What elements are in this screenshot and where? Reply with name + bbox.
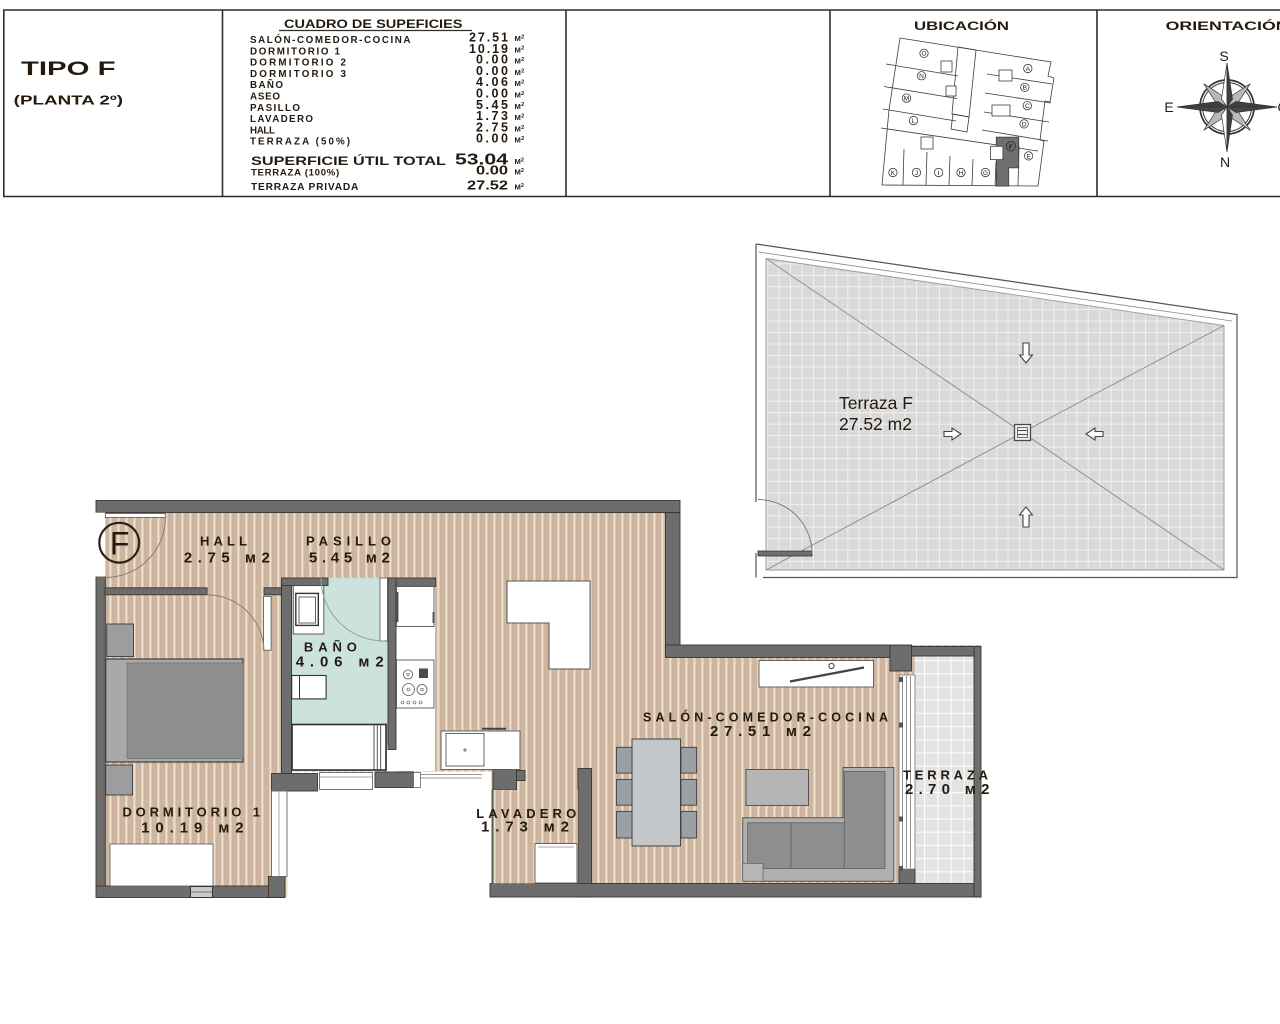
svg-text:BAÑO: BAÑO bbox=[250, 80, 283, 91]
svg-text:UBICACIÓN: UBICACIÓN bbox=[914, 20, 1009, 33]
svg-text:ASEO: ASEO bbox=[250, 92, 280, 103]
svg-text:DORMITORIO 1: DORMITORIO 1 bbox=[122, 804, 260, 819]
svg-text:M2: M2 bbox=[515, 136, 525, 145]
svg-text:O: O bbox=[921, 51, 926, 58]
svg-text:SUPERFICIE ÚTIL TOTAL: SUPERFICIE ÚTIL TOTAL bbox=[251, 153, 446, 168]
svg-text:TERRAZA (50%): TERRAZA (50%) bbox=[250, 137, 350, 148]
svg-text:N: N bbox=[919, 73, 924, 80]
svg-text:H: H bbox=[959, 170, 964, 177]
svg-text:M2: M2 bbox=[515, 79, 525, 88]
svg-text:S: S bbox=[1219, 48, 1228, 64]
svg-text:E: E bbox=[1026, 153, 1031, 160]
svg-text:J: J bbox=[915, 170, 918, 177]
svg-text:F: F bbox=[1009, 144, 1013, 151]
svg-text:M2: M2 bbox=[515, 91, 525, 100]
svg-text:TERRAZA (100%): TERRAZA (100%) bbox=[251, 168, 340, 179]
svg-text:L: L bbox=[912, 118, 916, 125]
svg-text:I: I bbox=[938, 170, 940, 177]
svg-text:M2: M2 bbox=[515, 124, 525, 133]
svg-text:C: C bbox=[1025, 103, 1030, 110]
svg-text:M2: M2 bbox=[515, 157, 524, 166]
svg-text:M2: M2 bbox=[515, 102, 525, 111]
svg-text:0.00: 0.00 bbox=[476, 164, 508, 178]
svg-text:DORMITORIO 2: DORMITORIO 2 bbox=[250, 58, 347, 69]
svg-text:A: A bbox=[1026, 66, 1031, 73]
svg-text:F: F bbox=[110, 526, 130, 562]
svg-text:TERRAZA PRIVADA: TERRAZA PRIVADA bbox=[251, 182, 359, 193]
svg-text:TIPO F: TIPO F bbox=[21, 59, 116, 80]
svg-text:M: M bbox=[904, 96, 909, 103]
svg-text:M2: M2 bbox=[515, 45, 525, 54]
svg-text:27.52: 27.52 bbox=[467, 178, 508, 193]
svg-text:D: D bbox=[1022, 121, 1027, 128]
svg-text:DORMITORIO 3: DORMITORIO 3 bbox=[250, 69, 347, 80]
svg-text:E: E bbox=[1164, 99, 1173, 115]
svg-text:HALL: HALL bbox=[250, 125, 275, 136]
svg-text:G: G bbox=[983, 170, 988, 177]
svg-text:27.52 m2: 27.52 m2 bbox=[839, 414, 912, 434]
svg-text:CUADRO DE SUPEFICIES: CUADRO DE SUPEFICIES bbox=[284, 19, 463, 31]
svg-text:M2: M2 bbox=[515, 183, 524, 192]
svg-text:PASILLO: PASILLO bbox=[250, 103, 300, 114]
svg-text:0.00: 0.00 bbox=[476, 132, 508, 146]
svg-text:Terraza F: Terraza F bbox=[839, 393, 913, 413]
svg-text:LAVADERO: LAVADERO bbox=[250, 114, 313, 125]
svg-text:N: N bbox=[1220, 154, 1230, 170]
svg-text:SALÓN-COMEDOR-COCINA: SALÓN-COMEDOR-COCINA bbox=[250, 34, 411, 46]
svg-text:M2: M2 bbox=[515, 113, 525, 122]
svg-text:(PLANTA 2º): (PLANTA 2º) bbox=[14, 93, 123, 108]
svg-text:DORMITORIO 1: DORMITORIO 1 bbox=[250, 46, 341, 57]
svg-text:M2: M2 bbox=[515, 168, 524, 177]
svg-text:B: B bbox=[1023, 85, 1027, 92]
svg-text:K: K bbox=[891, 170, 896, 177]
svg-text:ORIENTACIÓN: ORIENTACIÓN bbox=[1166, 20, 1280, 33]
svg-text:M2: M2 bbox=[515, 57, 525, 66]
svg-text:M2: M2 bbox=[515, 68, 525, 77]
svg-text:M2: M2 bbox=[515, 34, 525, 43]
